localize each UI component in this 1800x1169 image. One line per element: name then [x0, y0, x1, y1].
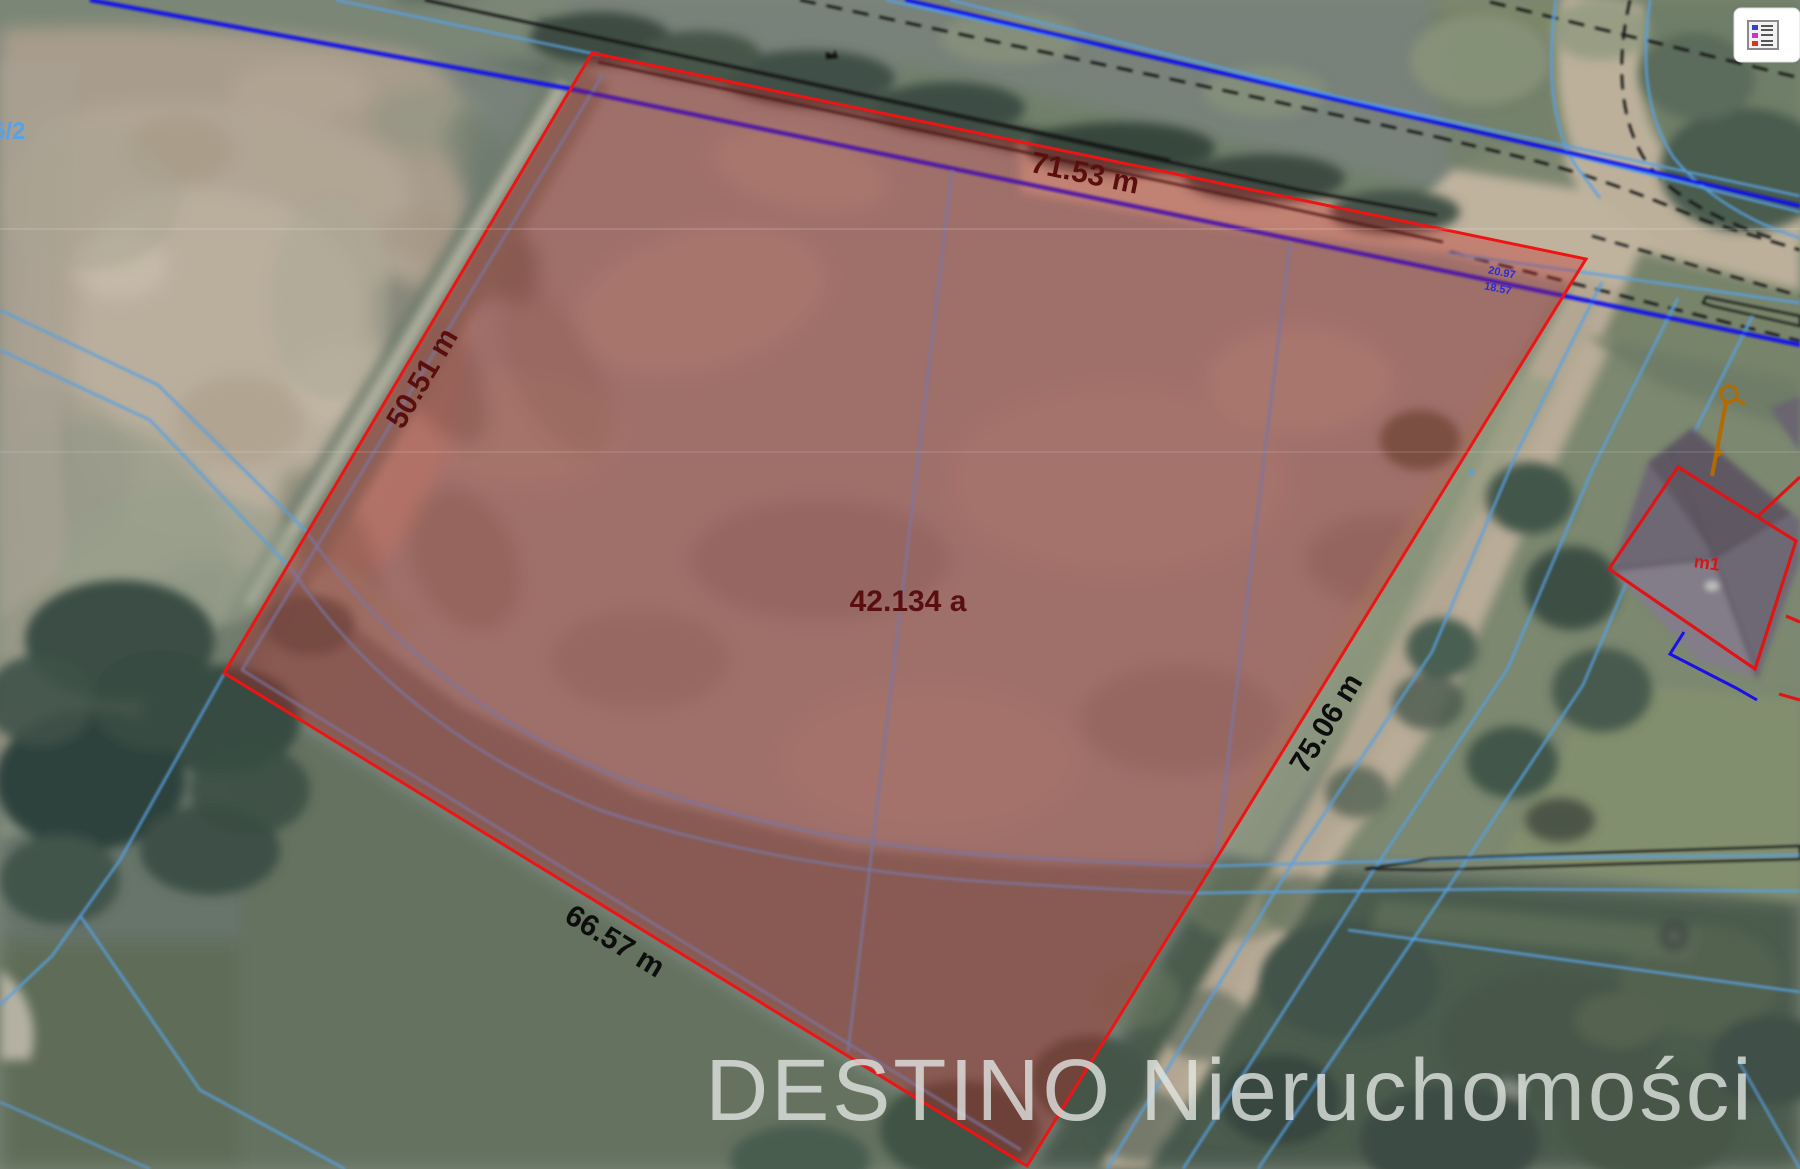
- svg-text:5/2: 5/2: [0, 118, 25, 145]
- svg-text:m1: m1: [1693, 551, 1722, 574]
- svg-text:DESTINO Nieruchomości: DESTINO Nieruchomości: [705, 1042, 1754, 1139]
- svg-text:42.134 a: 42.134 a: [850, 585, 967, 618]
